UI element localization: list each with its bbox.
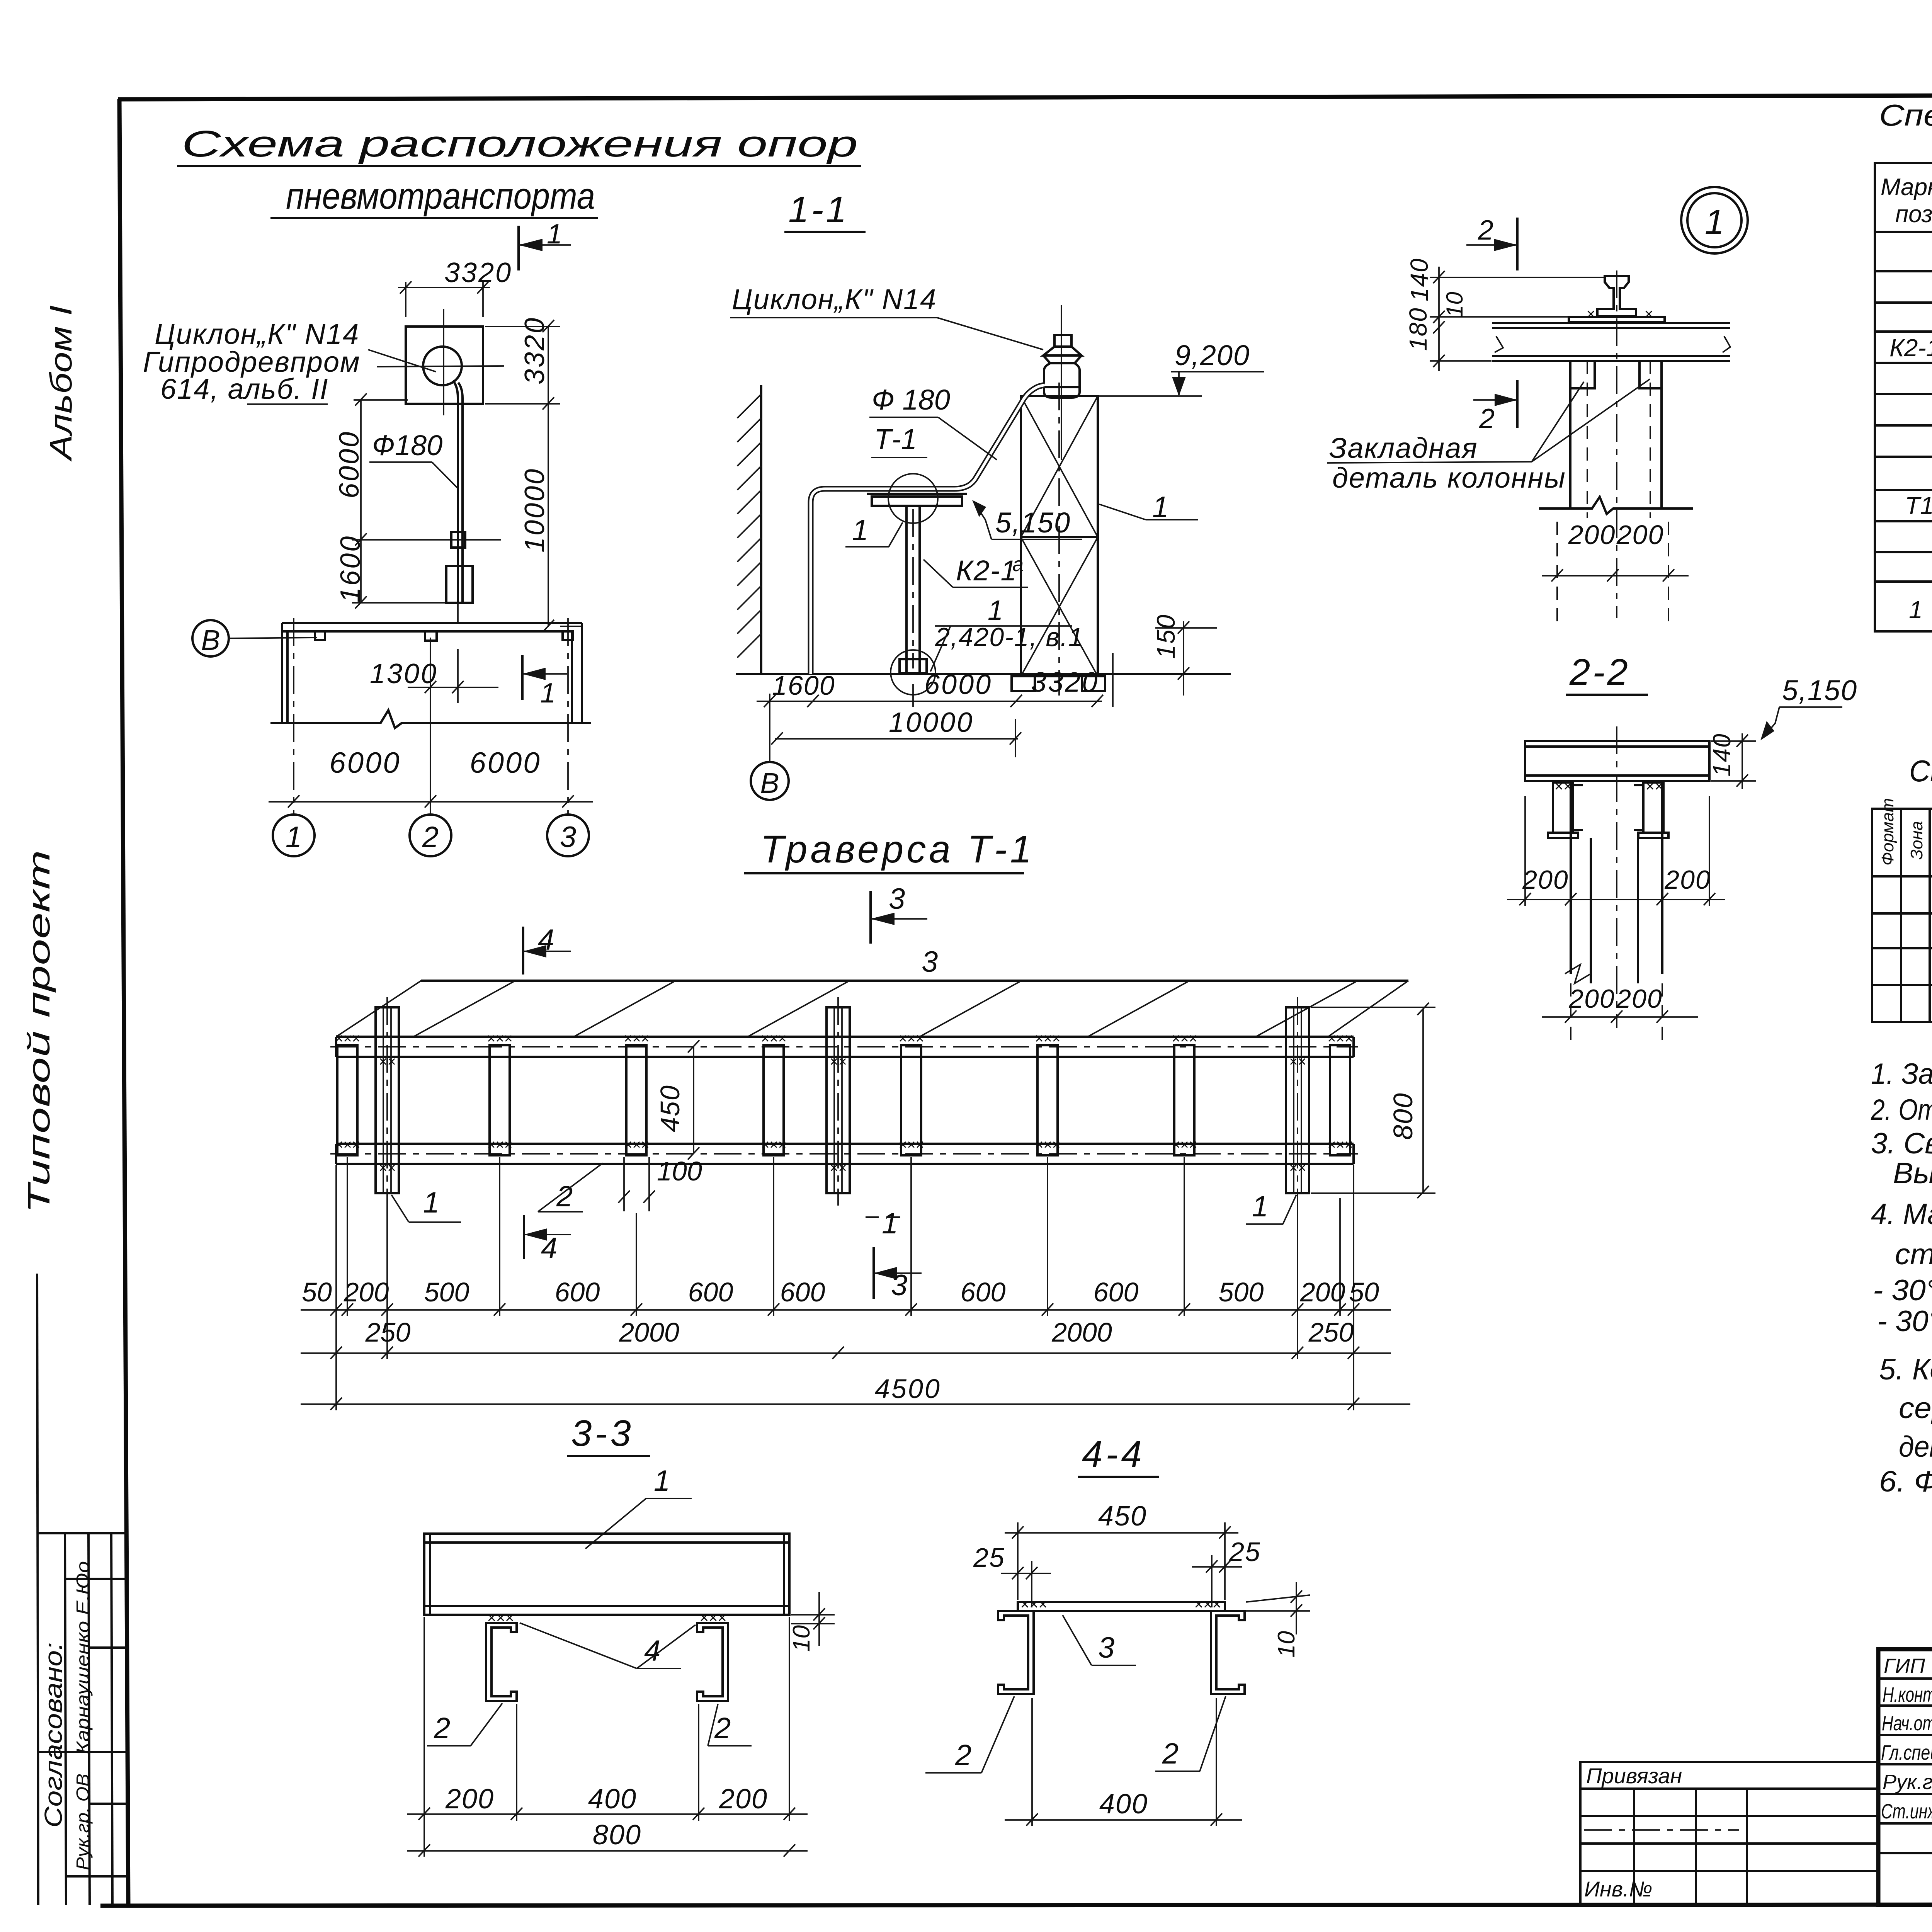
- svg-text:×: ×: [1644, 306, 1653, 323]
- svg-text:- 30°С до-40°С - ВСт3пс6.: - 30°С до-40°С - ВСт3пс6.: [1877, 1305, 1932, 1338]
- svg-text:1: 1: [1909, 596, 1923, 624]
- svg-text:Альбом I: Альбом I: [44, 305, 78, 462]
- svg-text:×××: ×××: [1327, 1031, 1353, 1047]
- svg-text:6000: 6000: [329, 747, 401, 779]
- svg-text:- 30°С и выше - ВСт3кп2, пр: - 30°С и выше - ВСт3кп2, при расчетной т…: [1873, 1274, 1932, 1307]
- svg-text:4: 4: [644, 1634, 660, 1667]
- svg-text:200: 200: [1664, 865, 1711, 895]
- svg-text:200: 200: [1616, 520, 1664, 550]
- svg-text:5,150: 5,150: [1782, 674, 1857, 706]
- svg-text:Гл.спец.: Гл.спец.: [1881, 1741, 1932, 1764]
- svg-text:Т-1: Т-1: [874, 423, 917, 455]
- svg-text:10: 10: [1442, 292, 1468, 318]
- svg-text:детали.: детали.: [1899, 1430, 1932, 1463]
- svg-text:3-3: 3-3: [571, 1413, 634, 1454]
- svg-text:1: 1: [547, 219, 562, 250]
- svg-text:×××: ×××: [761, 1137, 787, 1153]
- svg-text:×××: ×××: [898, 1031, 924, 1047]
- svg-text:200: 200: [445, 1784, 494, 1815]
- svg-text:4. Материал сварных конструк: 4. Материал сварных конструкций углероди…: [1871, 1198, 1932, 1231]
- svg-text:6. Фундаменты см. лист КЖ- 6: 6. Фундаменты см. лист КЖ- 6.: [1879, 1465, 1932, 1498]
- svg-text:××: ××: [379, 1160, 396, 1176]
- svg-text:×××: ×××: [761, 1031, 787, 1047]
- svg-text:×××: ×××: [1035, 1031, 1061, 1047]
- svg-text:2. Отметка земли - 0,150 мм.: 2. Отметка земли - 0,150 мм.: [1871, 1094, 1932, 1126]
- svg-text:2: 2: [422, 821, 439, 854]
- svg-text:3320: 3320: [444, 257, 512, 288]
- svg-text:1: 1: [286, 821, 302, 854]
- svg-text:200: 200: [1568, 520, 1616, 550]
- svg-text:2000: 2000: [1051, 1317, 1112, 1347]
- svg-text:×××: ×××: [335, 1137, 361, 1153]
- svg-text:Формат: Формат: [1878, 798, 1897, 866]
- svg-text:500: 500: [1219, 1277, 1264, 1307]
- svg-text:1: 1: [1152, 491, 1168, 524]
- svg-text:Спецификация к схеме располо: Спецификация к схеме расположения опор: [1879, 98, 1932, 132]
- svg-text:поз.: поз.: [1895, 201, 1932, 228]
- svg-text:×××: ×××: [898, 1137, 924, 1153]
- svg-text:1: 1: [988, 595, 1003, 626]
- svg-text:450: 450: [655, 1085, 685, 1132]
- svg-text:Привязан: Привязан: [1586, 1764, 1682, 1788]
- svg-text:800: 800: [1388, 1092, 1418, 1140]
- svg-text:2: 2: [955, 1739, 971, 1772]
- svg-text:серии 3.015-1/77, вып.II-1 н: серии 3.015-1/77, вып.II-1 наличием закл…: [1899, 1392, 1932, 1425]
- svg-text:Циклон„К" N14: Циклон„К" N14: [155, 318, 359, 350]
- svg-text:450: 450: [1098, 1501, 1147, 1532]
- svg-text:××: ××: [830, 1160, 847, 1176]
- svg-text:Типовой проект: Типовой проект: [22, 850, 56, 1213]
- svg-text:140: 140: [1405, 258, 1433, 301]
- svg-text:200: 200: [1300, 1277, 1345, 1307]
- svg-text:×××: ×××: [1035, 1137, 1061, 1153]
- svg-text:2: 2: [714, 1712, 731, 1745]
- svg-text:1: 1: [540, 678, 556, 709]
- svg-text:1: 1: [1252, 1190, 1268, 1223]
- svg-text:1: 1: [882, 1207, 898, 1240]
- svg-text:4: 4: [538, 923, 554, 956]
- svg-text:Карнаушенко Е.Юо: Карнаушенко Е.Юо: [73, 1561, 93, 1754]
- svg-text:3: 3: [1098, 1631, 1114, 1664]
- svg-text:600: 600: [688, 1277, 733, 1307]
- svg-text:Траверса Т-1: Траверса Т-1: [760, 828, 1035, 871]
- svg-text:200: 200: [344, 1277, 389, 1307]
- svg-text:5,150: 5,150: [995, 507, 1071, 539]
- svg-text:1600: 1600: [335, 535, 366, 603]
- svg-text:××: ××: [830, 1054, 847, 1070]
- svg-text:×××: ×××: [487, 1031, 513, 1047]
- svg-text:××: ××: [379, 1054, 396, 1070]
- svg-text:сталь по ГОСТ 380-71* при: сталь по ГОСТ 380-71* при расчетной темп…: [1895, 1238, 1932, 1271]
- svg-text:×××: ×××: [335, 1031, 361, 1047]
- svg-text:150: 150: [1151, 614, 1180, 659]
- svg-text:3: 3: [891, 1269, 907, 1302]
- svg-text:1: 1: [1705, 203, 1724, 241]
- svg-text:50: 50: [1349, 1277, 1379, 1307]
- svg-text:×××: ×××: [1172, 1031, 1197, 1047]
- svg-text:2-2: 2-2: [1569, 651, 1630, 693]
- svg-text:Нач.отд: Нач.отд: [1882, 1712, 1932, 1735]
- svg-text:пневмотранспорта: пневмотранспорта: [286, 175, 595, 217]
- svg-text:4-4: 4-4: [1082, 1434, 1145, 1475]
- svg-text:600: 600: [1094, 1277, 1139, 1307]
- svg-text:5. Колонна К2-1.ª отличается: 5. Колонна К2-1.ª отличается от колонны …: [1879, 1353, 1932, 1386]
- svg-text:Ст.инж.: Ст.инж.: [1881, 1800, 1932, 1823]
- svg-text:К2-1: К2-1: [956, 554, 1017, 587]
- svg-text:2: 2: [434, 1712, 450, 1745]
- svg-text:600: 600: [961, 1277, 1006, 1307]
- svg-text:2: 2: [1162, 1737, 1179, 1770]
- svg-text:600: 600: [555, 1277, 600, 1307]
- svg-text:3320: 3320: [1031, 667, 1099, 698]
- svg-text:Ф 180: Ф 180: [872, 384, 950, 416]
- svg-text:400: 400: [1099, 1789, 1148, 1820]
- svg-text:Согласовано:: Согласовано:: [39, 1642, 67, 1828]
- svg-text:500: 500: [424, 1277, 469, 1307]
- svg-text:Марка,: Марка,: [1881, 174, 1932, 201]
- svg-text:Высота шва h= 6мм.: Высота шва h= 6мм.: [1893, 1157, 1932, 1190]
- svg-text:100: 100: [657, 1156, 702, 1186]
- svg-text:200: 200: [1522, 865, 1568, 895]
- svg-text:3: 3: [922, 946, 938, 978]
- svg-text:Инв.№: Инв.№: [1584, 1877, 1652, 1901]
- svg-text:а: а: [1012, 553, 1024, 576]
- svg-text:В: В: [760, 767, 779, 799]
- svg-text:2000: 2000: [619, 1317, 679, 1347]
- svg-text:1600: 1600: [772, 670, 835, 701]
- svg-text:6000: 6000: [469, 747, 541, 779]
- svg-text:В: В: [201, 624, 220, 656]
- svg-text:×××: ×××: [1327, 1137, 1353, 1153]
- svg-text:××: ××: [1289, 1054, 1306, 1070]
- svg-text:деталь колонны: деталь колонны: [1332, 462, 1566, 494]
- svg-text:Рук.гр.: Рук.гр.: [1883, 1770, 1932, 1794]
- svg-text:200: 200: [1568, 984, 1615, 1014]
- svg-text:250: 250: [1308, 1317, 1354, 1347]
- svg-text:К2-1: К2-1: [1889, 334, 1932, 362]
- svg-text:××: ××: [1554, 778, 1572, 795]
- svg-text:50: 50: [302, 1277, 332, 1307]
- svg-text:1. За отметку 0,000 условно: 1. За отметку 0,000 условно принят урове…: [1871, 1058, 1932, 1090]
- svg-text:140: 140: [1708, 733, 1736, 777]
- svg-text:614, альб. II: 614, альб. II: [160, 373, 328, 405]
- svg-text:1: 1: [654, 1464, 670, 1497]
- svg-text:Закладная: Закладная: [1329, 432, 1478, 464]
- svg-text:6000: 6000: [924, 669, 992, 700]
- svg-text:4: 4: [541, 1232, 557, 1265]
- svg-text:Рук.гр. ОВ: Рук.гр. ОВ: [73, 1774, 93, 1870]
- svg-text:2,420-1, в.1: 2,420-1, в.1: [935, 622, 1084, 652]
- svg-text:4500: 4500: [875, 1374, 941, 1404]
- svg-text:6000: 6000: [334, 430, 365, 498]
- svg-text:Т1: Т1: [1905, 492, 1932, 519]
- svg-text:×××: ×××: [487, 1137, 513, 1153]
- svg-text:ГИП: ГИП: [1884, 1655, 1925, 1678]
- svg-text:1-1: 1-1: [788, 189, 849, 230]
- svg-text:180: 180: [1404, 307, 1432, 351]
- svg-text:10000: 10000: [889, 707, 974, 738]
- svg-text:Ф180: Ф180: [372, 429, 442, 461]
- svg-text:Зона: Зона: [1907, 821, 1926, 860]
- svg-text:×××: ×××: [624, 1031, 650, 1047]
- svg-text:×××: ×××: [1172, 1137, 1197, 1153]
- svg-text:9,200: 9,200: [1175, 339, 1250, 371]
- svg-text:10000: 10000: [519, 468, 550, 553]
- svg-text:Н.контр: Н.контр: [1883, 1683, 1932, 1706]
- svg-text:10: 10: [1273, 1631, 1300, 1658]
- svg-text:Схема расположения опор: Схема расположения опор: [182, 123, 858, 165]
- svg-text:×××: ×××: [624, 1137, 650, 1153]
- svg-text:600: 600: [780, 1277, 825, 1307]
- svg-text:800: 800: [593, 1820, 641, 1850]
- svg-text:200: 200: [719, 1784, 768, 1815]
- svg-text:×: ×: [1586, 306, 1595, 323]
- svg-text:××: ××: [1645, 778, 1663, 795]
- svg-text:Спецификация элементов траве: Спецификация элементов траверсы Т-1: [1909, 754, 1932, 788]
- svg-text:1300: 1300: [370, 658, 438, 689]
- svg-text:3: 3: [889, 883, 905, 915]
- svg-text:10: 10: [788, 1625, 815, 1652]
- svg-text:3. Сварку производить электр: 3. Сварку производить электродом Э42 по …: [1871, 1127, 1932, 1160]
- svg-text:400: 400: [588, 1784, 637, 1815]
- svg-text:2: 2: [1479, 403, 1495, 434]
- svg-text:2: 2: [1478, 215, 1493, 246]
- svg-text:Циклон„К" N14: Циклон„К" N14: [732, 283, 937, 315]
- svg-text:1: 1: [423, 1186, 439, 1219]
- svg-text:250: 250: [365, 1317, 411, 1347]
- svg-text:3: 3: [560, 821, 576, 854]
- svg-text:25: 25: [973, 1543, 1005, 1573]
- svg-text:25: 25: [1229, 1537, 1261, 1567]
- svg-text:200: 200: [1616, 984, 1662, 1014]
- svg-text:××: ××: [1289, 1160, 1306, 1176]
- svg-text:1: 1: [852, 514, 868, 547]
